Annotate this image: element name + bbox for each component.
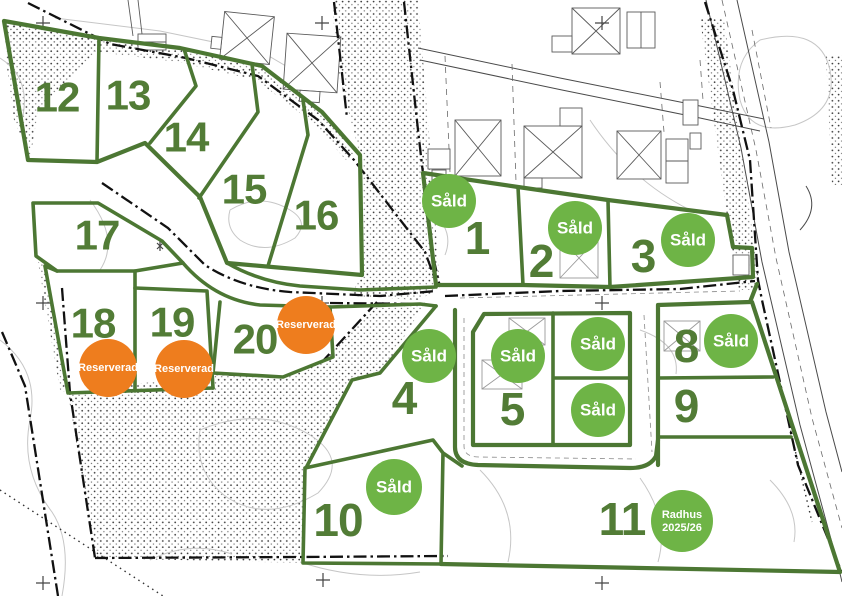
plot-number-10: 10 bbox=[313, 494, 362, 546]
plot-badge-11-townhouse[interactable]: Radhus2025/26 bbox=[651, 490, 713, 552]
status-badge-label: Såld bbox=[580, 401, 616, 420]
plot-number-8: 8 bbox=[674, 320, 699, 372]
plot-number-4: 4 bbox=[392, 372, 418, 424]
plot-number-15: 15 bbox=[222, 166, 267, 213]
plot-badge-10-sold[interactable]: Såld bbox=[366, 459, 422, 515]
plot-number-5: 5 bbox=[500, 383, 525, 435]
plot-badge-8-sold[interactable]: Såld bbox=[704, 314, 758, 368]
status-badge-label: 2025/26 bbox=[662, 522, 702, 534]
status-badge-label: Såld bbox=[376, 478, 412, 497]
status-badge-label: Reserverad bbox=[276, 319, 336, 331]
plot-number-11: 11 bbox=[599, 493, 646, 545]
status-badge-label: Såld bbox=[500, 347, 536, 366]
plot-number-12: 12 bbox=[35, 74, 80, 121]
status-badge-label: Såld bbox=[580, 335, 616, 354]
plot-badge-2-sold[interactable]: Såld bbox=[548, 201, 602, 255]
plot-number-3: 3 bbox=[631, 230, 656, 282]
status-circle bbox=[651, 490, 713, 552]
status-badge-label: Såld bbox=[713, 332, 749, 351]
plot-number-17: 17 bbox=[75, 212, 120, 259]
plot-badge-4-sold[interactable]: Såld bbox=[402, 329, 456, 383]
plot-map: 1Såld2Såld3Såld4Såld5SåldSåldSåld8Såld91… bbox=[0, 0, 842, 596]
status-badge-label: Såld bbox=[557, 219, 593, 238]
status-badge-label: Såld bbox=[670, 231, 706, 250]
plot-number-2: 2 bbox=[529, 235, 554, 287]
basemap-svg: 1Såld2Såld3Såld4Såld5SåldSåldSåld8Såld91… bbox=[0, 0, 842, 596]
plot-badge-5-sold[interactable]: Såld bbox=[491, 329, 545, 383]
plot-number-1: 1 bbox=[465, 212, 490, 264]
plot-badge-1-sold[interactable]: Såld bbox=[422, 174, 476, 228]
plot-badge-unnumbered-sold[interactable]: Såld bbox=[571, 317, 625, 371]
status-badge-label: Såld bbox=[411, 347, 447, 366]
plot-badge-3-sold[interactable]: Såld bbox=[661, 213, 715, 267]
status-badge-label: Såld bbox=[431, 192, 467, 211]
plot-number-19: 19 bbox=[150, 299, 195, 346]
plot-number-16: 16 bbox=[294, 192, 339, 239]
houses bbox=[138, 8, 749, 275]
plot-number-20: 20 bbox=[233, 316, 278, 363]
plot-number-14: 14 bbox=[164, 114, 210, 161]
status-badge-label: Radhus bbox=[662, 509, 702, 521]
status-badge-label: Reserverad bbox=[154, 363, 214, 375]
plot-badge-unnumbered-sold[interactable]: Såld bbox=[571, 383, 625, 437]
status-badge-label: Reserverad bbox=[78, 362, 138, 374]
plot-number-13: 13 bbox=[106, 72, 151, 119]
plot-number-9: 9 bbox=[674, 380, 699, 432]
